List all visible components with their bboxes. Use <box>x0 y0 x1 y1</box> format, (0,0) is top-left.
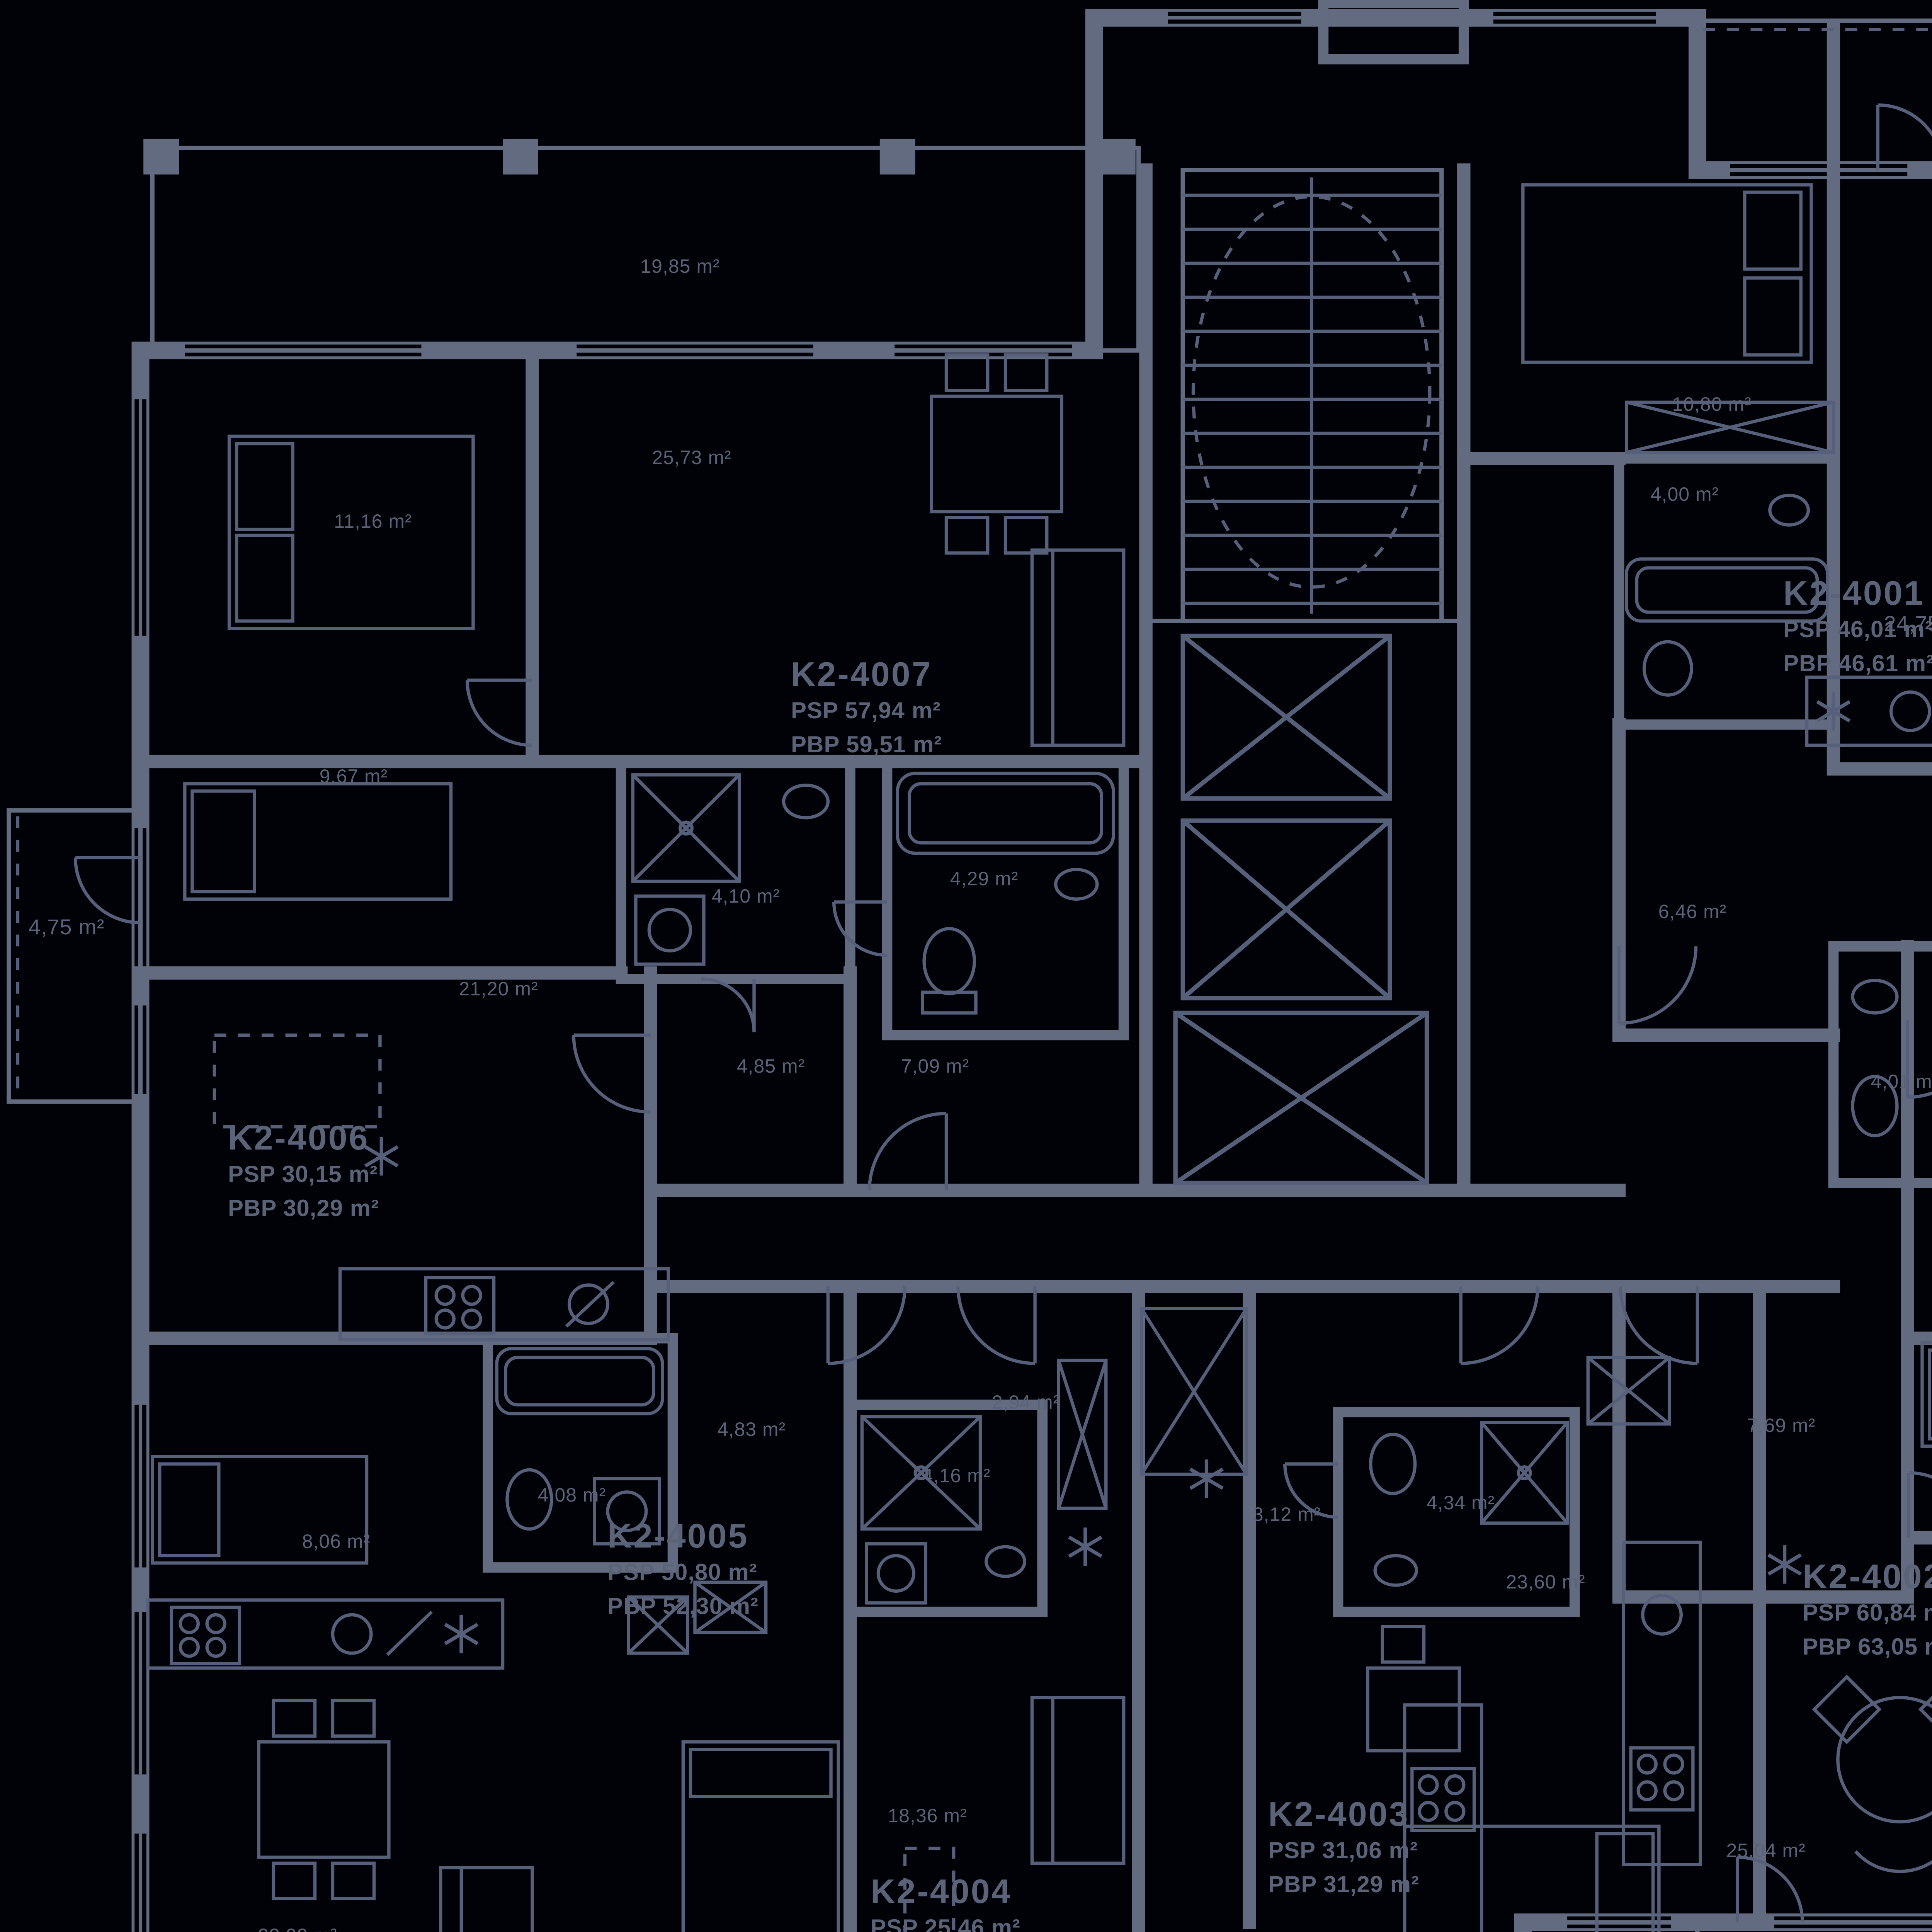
room-area-label: 7,09 m² <box>901 1055 969 1077</box>
apartment-label-k2-4006[interactable]: K2-4006 PSP 30,15 m² PBP 30,29 m² <box>228 1119 379 1225</box>
floor-plan-page: 9,53 m² 19,85 m² 4,75 m² 9,94 m² 6,15 m²… <box>0 0 1932 1932</box>
apartment-psp: PSP 30,15 m² <box>228 1157 379 1191</box>
room-area-label: 3,12 m² <box>1253 1503 1321 1526</box>
room-area-label: 22,99 m² <box>258 1924 337 1932</box>
room-area-label: 10,80 m² <box>1672 393 1751 415</box>
room-area-label: 4,00 m² <box>1651 483 1719 505</box>
apartment-id: K2-4005 <box>607 1517 759 1555</box>
room-area-label: 4,16 m² <box>922 1464 991 1487</box>
terrace-area-label: 19,85 m² <box>640 255 719 277</box>
apartment-label-k2-4001[interactable]: K2-4001 PSP 46,01 m² PBP 46,61 m² <box>1783 574 1932 680</box>
apartment-psp: PSP 60,84 m² <box>1803 1596 1932 1630</box>
apartment-label-k2-4007[interactable]: K2-4007 PSP 57,94 m² PBP 59,51 m² <box>791 655 942 762</box>
apartment-pbp: PBP 52,30 m² <box>607 1589 759 1623</box>
interior-walls <box>141 30 1932 1932</box>
apartment-pbp: PBP 63,05 m² <box>1803 1630 1932 1664</box>
floor-plan-drawing <box>0 0 1932 1932</box>
room-area-label: 4,10 m² <box>712 885 780 907</box>
apartment-pbp: PBP 59,51 m² <box>791 728 942 762</box>
asterisk-icon <box>445 1615 478 1653</box>
room-area-label: 4,85 m² <box>737 1055 805 1077</box>
stairs <box>1183 170 1442 621</box>
room-area-label: 4,83 m² <box>718 1418 786 1440</box>
apartment-pbp: PBP 46,61 m² <box>1783 646 1932 680</box>
room-area-label: 6,46 m² <box>1658 900 1727 923</box>
balcony-area-label: 4,75 m² <box>29 914 105 939</box>
balcony-ne-outline <box>1697 21 1932 170</box>
terrace-outline <box>152 148 1138 350</box>
apartment-id: K2-4001 <box>1783 574 1932 612</box>
room-area-label: 9,67 m² <box>320 765 388 787</box>
asterisk-icon <box>1069 1527 1102 1566</box>
apartment-pbp: PBP 30,29 m² <box>228 1191 379 1225</box>
apartment-id: K2-4003 <box>1268 1795 1419 1833</box>
furniture <box>148 185 1932 1932</box>
apartment-id: K2-4004 <box>871 1872 1022 1911</box>
room-area-label: 25,04 m² <box>1726 1839 1805 1862</box>
apartment-label-k2-4003[interactable]: K2-4003 PSP 31,06 m² PBP 31,29 m² <box>1268 1795 1419 1901</box>
apartment-psp: PSP 46,01 m² <box>1783 612 1932 646</box>
room-area-label: 2,94 m² <box>992 1391 1060 1413</box>
apartment-pbp: PBP 31,29 m² <box>1268 1867 1419 1901</box>
apartment-id: K2-4007 <box>791 655 942 694</box>
apartment-psp: PSP 25,46 m² <box>871 1911 1022 1932</box>
room-area-label: 21,20 m² <box>459 978 538 1000</box>
apartment-label-k2-4002[interactable]: K2-4002 PSP 60,84 m² PBP 63,05 m² <box>1803 1557 1932 1664</box>
elevator-shafts <box>1175 636 1427 1183</box>
room-area-label: 23,60 m² <box>1506 1571 1585 1593</box>
asterisk-icon <box>1769 1545 1801 1583</box>
room-area-label: 7,69 m² <box>1747 1414 1816 1437</box>
balcony-w-outline <box>9 810 141 1102</box>
apartment-id: K2-4006 <box>228 1119 379 1157</box>
room-area-label: 25,73 m² <box>652 446 731 469</box>
room-area-label: 11,16 m² <box>334 510 412 532</box>
room-area-label: 8,06 m² <box>302 1530 371 1553</box>
apartment-label-k2-4004[interactable]: K2-4004 PSP 25,46 m² PBP 25,57 m² <box>871 1872 1022 1932</box>
asterisk-icon <box>1190 1459 1223 1498</box>
room-area-label: 4,08 m² <box>538 1484 606 1506</box>
apartment-psp: PSP 50,80 m² <box>607 1555 759 1589</box>
apartment-id: K2-4002 <box>1803 1557 1932 1596</box>
room-area-label: 4,01 m² <box>1871 1070 1932 1093</box>
doors <box>75 105 1932 1932</box>
apartment-psp: PSP 57,94 m² <box>791 694 942 728</box>
apartment-psp: PSP 31,06 m² <box>1268 1833 1419 1867</box>
shafts-and-wardrobes <box>628 402 1932 1653</box>
room-area-label: 18,36 m² <box>888 1804 967 1827</box>
room-area-label: 4,29 m² <box>950 867 1019 890</box>
apartment-label-k2-4005[interactable]: K2-4005 PSP 50,80 m² PBP 52,30 m² <box>607 1517 759 1623</box>
room-area-label: 4,34 m² <box>1427 1492 1495 1514</box>
